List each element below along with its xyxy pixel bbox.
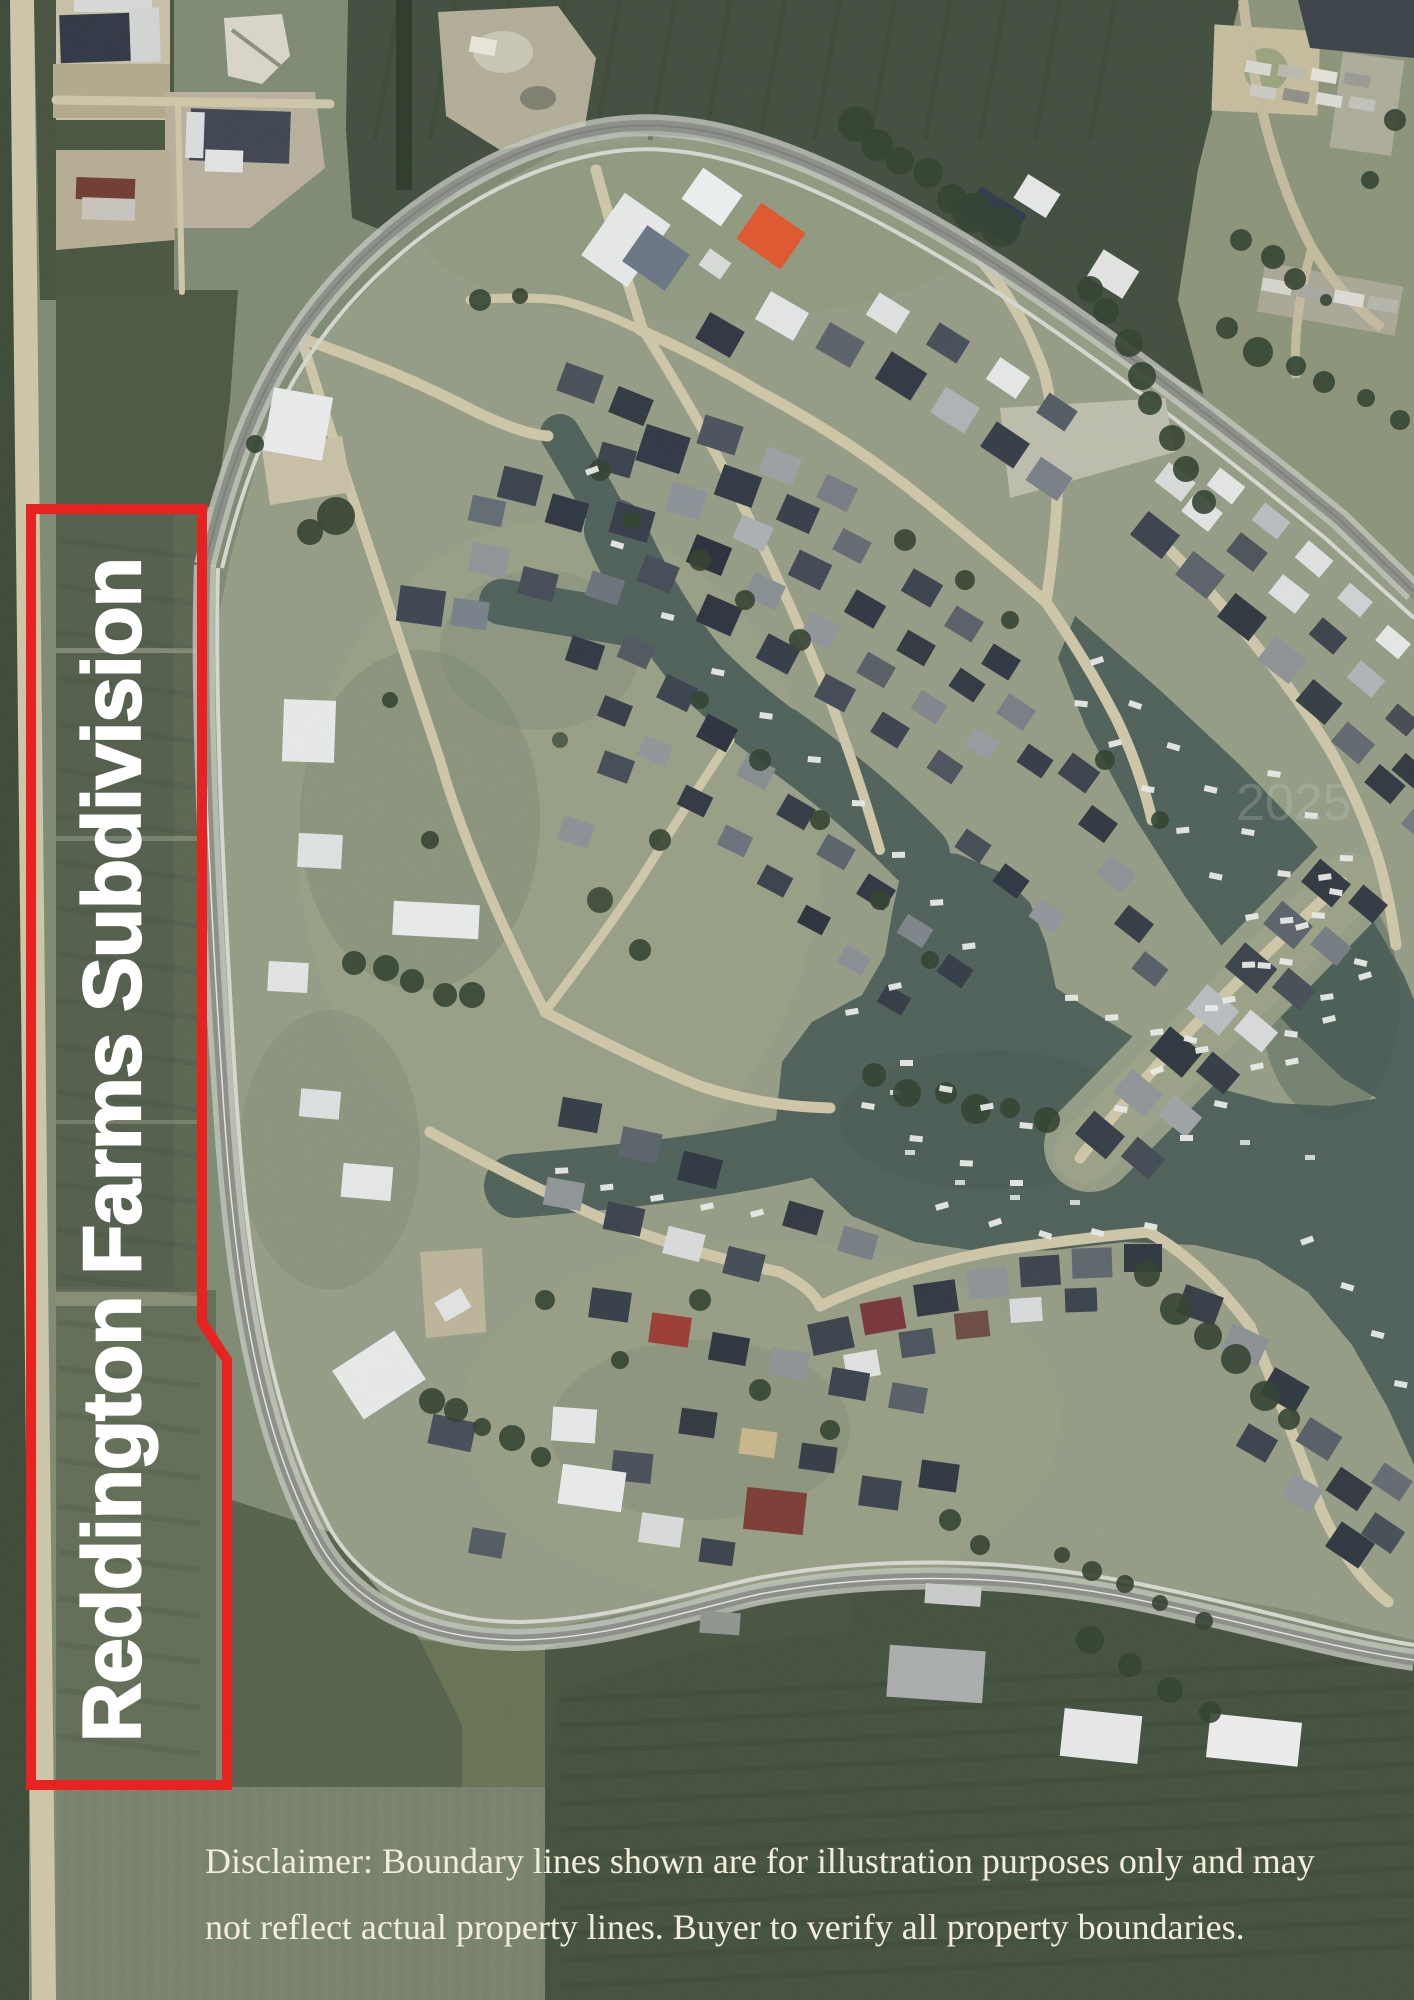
svg-text:2025: 2025	[1236, 774, 1352, 832]
